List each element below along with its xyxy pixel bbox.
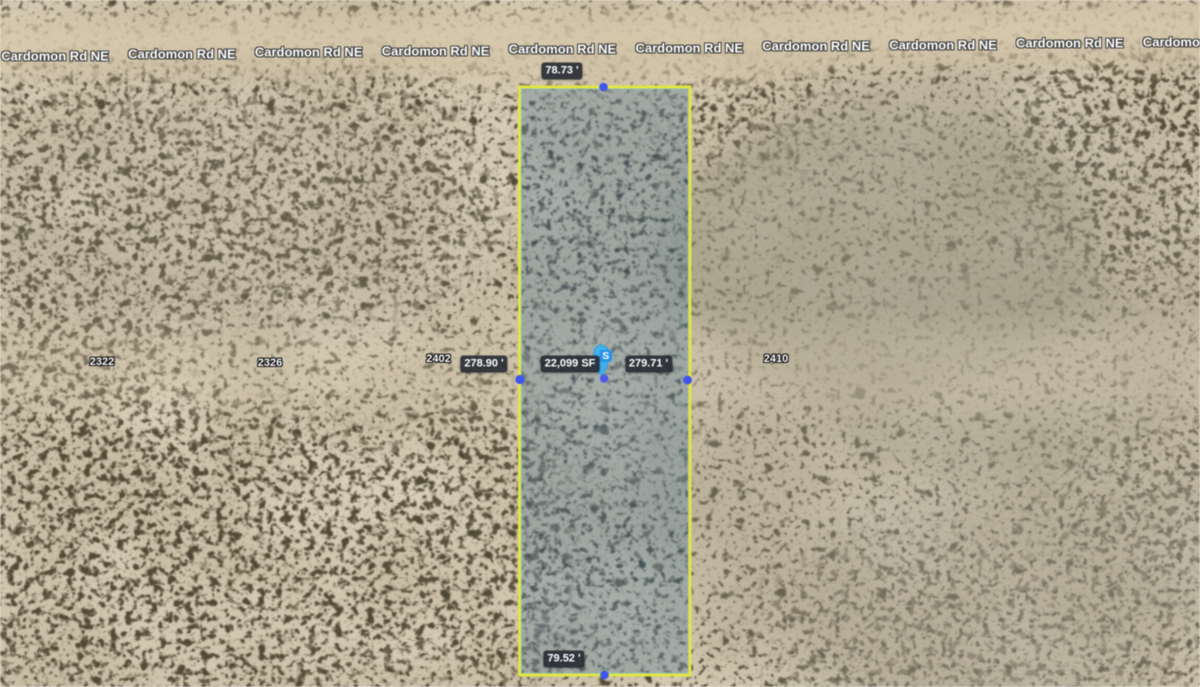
svg-text:S: S bbox=[602, 350, 609, 362]
